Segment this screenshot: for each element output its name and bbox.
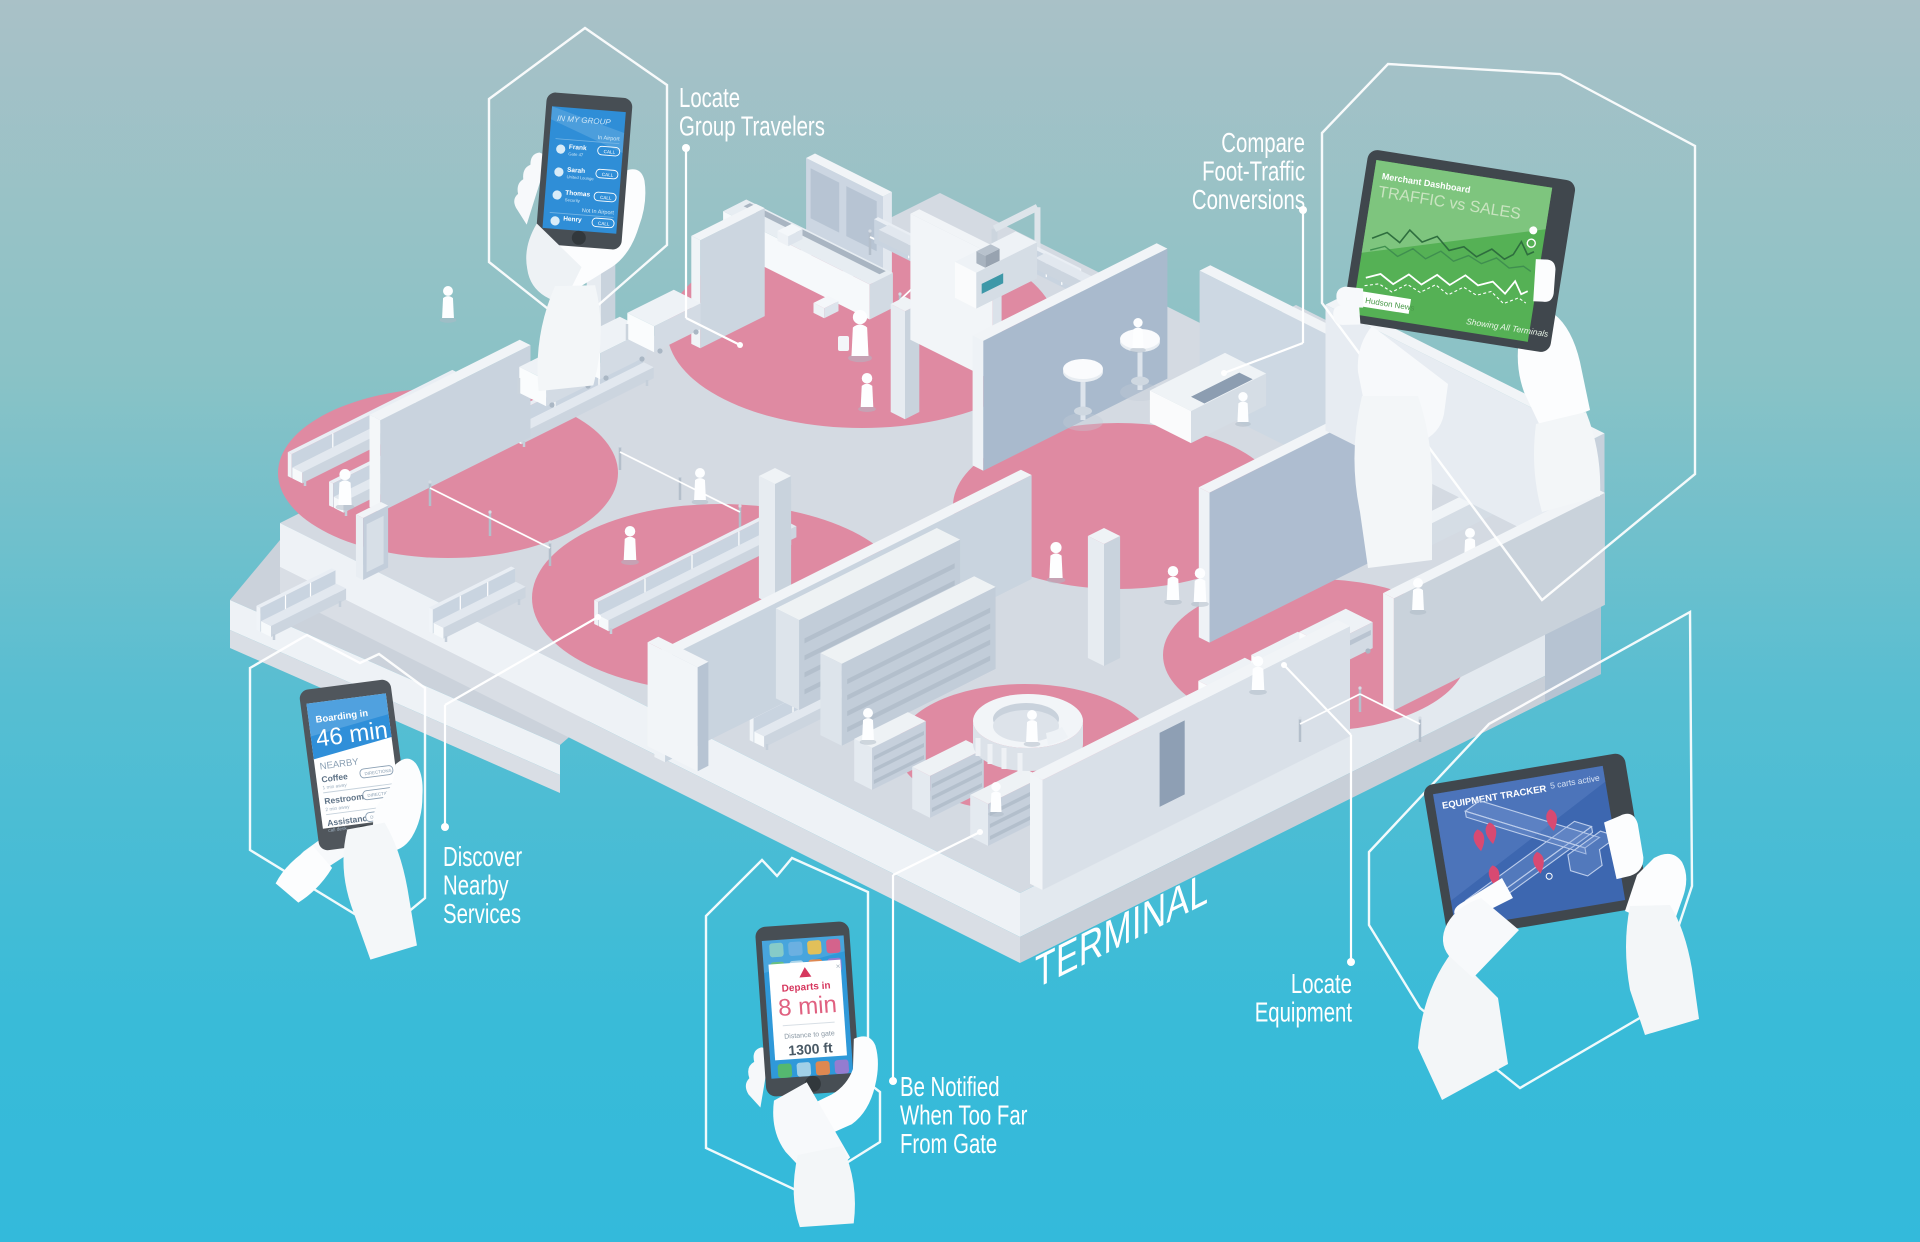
svg-text:CALL: CALL — [600, 195, 612, 201]
svg-text:CALL: CALL — [603, 149, 615, 155]
svg-text:1300 ft: 1300 ft — [788, 1039, 834, 1058]
svg-text:8 min: 8 min — [777, 991, 837, 1022]
svg-text:CALL: CALL — [602, 172, 614, 178]
svg-text:CALL: CALL — [598, 221, 610, 227]
svg-text:Henry: Henry — [563, 216, 582, 224]
